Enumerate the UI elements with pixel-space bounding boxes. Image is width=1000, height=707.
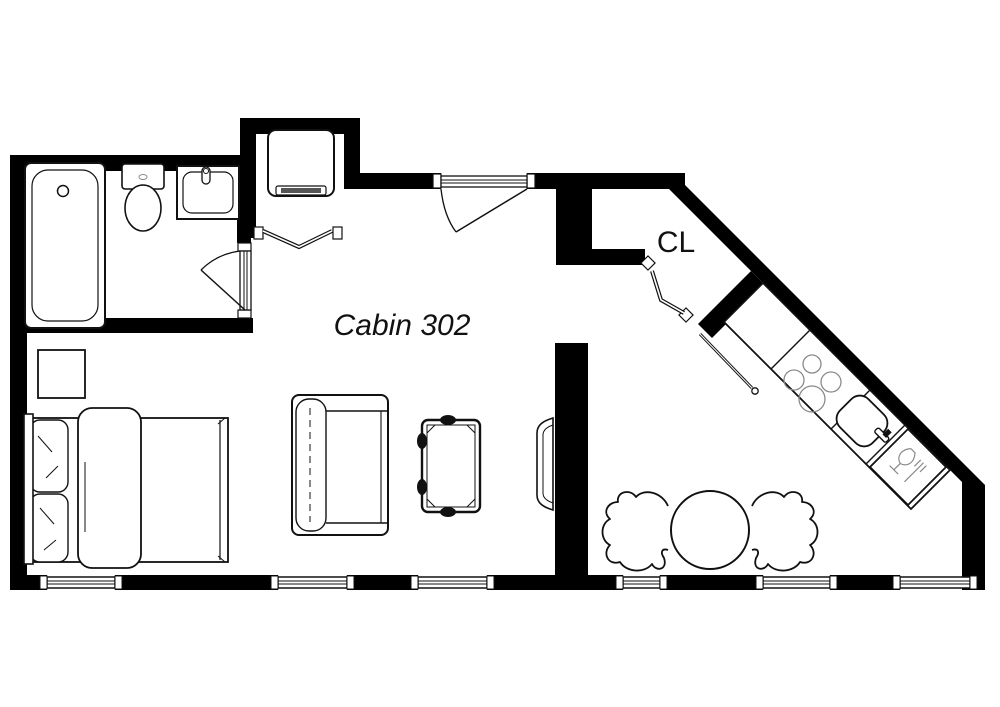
floor-plan-svg: Cabin 302 CL: [0, 0, 1000, 707]
table-knob: [440, 507, 456, 517]
faucet-icon: [202, 167, 210, 184]
table-knob: [417, 479, 427, 495]
window: [616, 576, 667, 589]
bathroom-door-leaf: [201, 270, 245, 310]
pillow: [30, 420, 68, 492]
window: [271, 576, 354, 589]
entry-door-swing: [441, 189, 456, 232]
closet-door-knob: [752, 388, 758, 394]
washer-panel: [281, 188, 321, 193]
window: [411, 576, 494, 589]
entry-stub-wall: [556, 173, 592, 265]
toilet: [122, 164, 164, 231]
bottom-wall-seg: [347, 575, 418, 590]
dining-table: [671, 491, 749, 569]
bathroom-door-swing: [201, 251, 240, 270]
dining-chair: [752, 492, 818, 571]
bottom-wall-seg: [830, 575, 900, 590]
toilet-bowl: [125, 185, 161, 231]
table-knob: [440, 415, 456, 425]
dining-chair: [603, 492, 669, 571]
coffee-table: [417, 415, 480, 517]
pillow: [30, 494, 68, 562]
alcove-bifold-door: [254, 227, 342, 247]
top-wall-left-of-door: [344, 173, 441, 189]
bathtub: [25, 163, 105, 328]
tv: [537, 418, 553, 510]
bottom-wall-seg: [660, 575, 763, 590]
window: [40, 576, 122, 589]
floor-plan: Cabin 302 CL: [0, 0, 1000, 707]
bathroom-door: [201, 243, 251, 318]
bed-comforter: [78, 408, 141, 568]
bottom-wall-seg: [115, 575, 278, 590]
table-knob: [417, 433, 427, 449]
cabin-label: Cabin 302: [334, 309, 471, 342]
headboard: [24, 414, 33, 564]
sofa-back-cushion: [296, 399, 326, 531]
washer: [268, 130, 334, 196]
entry-door: [433, 174, 535, 232]
bathroom-sink: [177, 166, 239, 219]
bed: [24, 408, 228, 568]
kitchen-counter: [724, 283, 950, 509]
nightstand: [38, 350, 85, 398]
window: [893, 576, 977, 589]
closet-stub-wall: [592, 249, 645, 265]
sofa: [292, 395, 388, 535]
window: [756, 576, 837, 589]
partition-wall: [555, 343, 588, 577]
entry-door-leaf: [456, 189, 527, 232]
closet-label: CL: [657, 226, 695, 259]
bottom-wall-seg: [487, 575, 623, 590]
